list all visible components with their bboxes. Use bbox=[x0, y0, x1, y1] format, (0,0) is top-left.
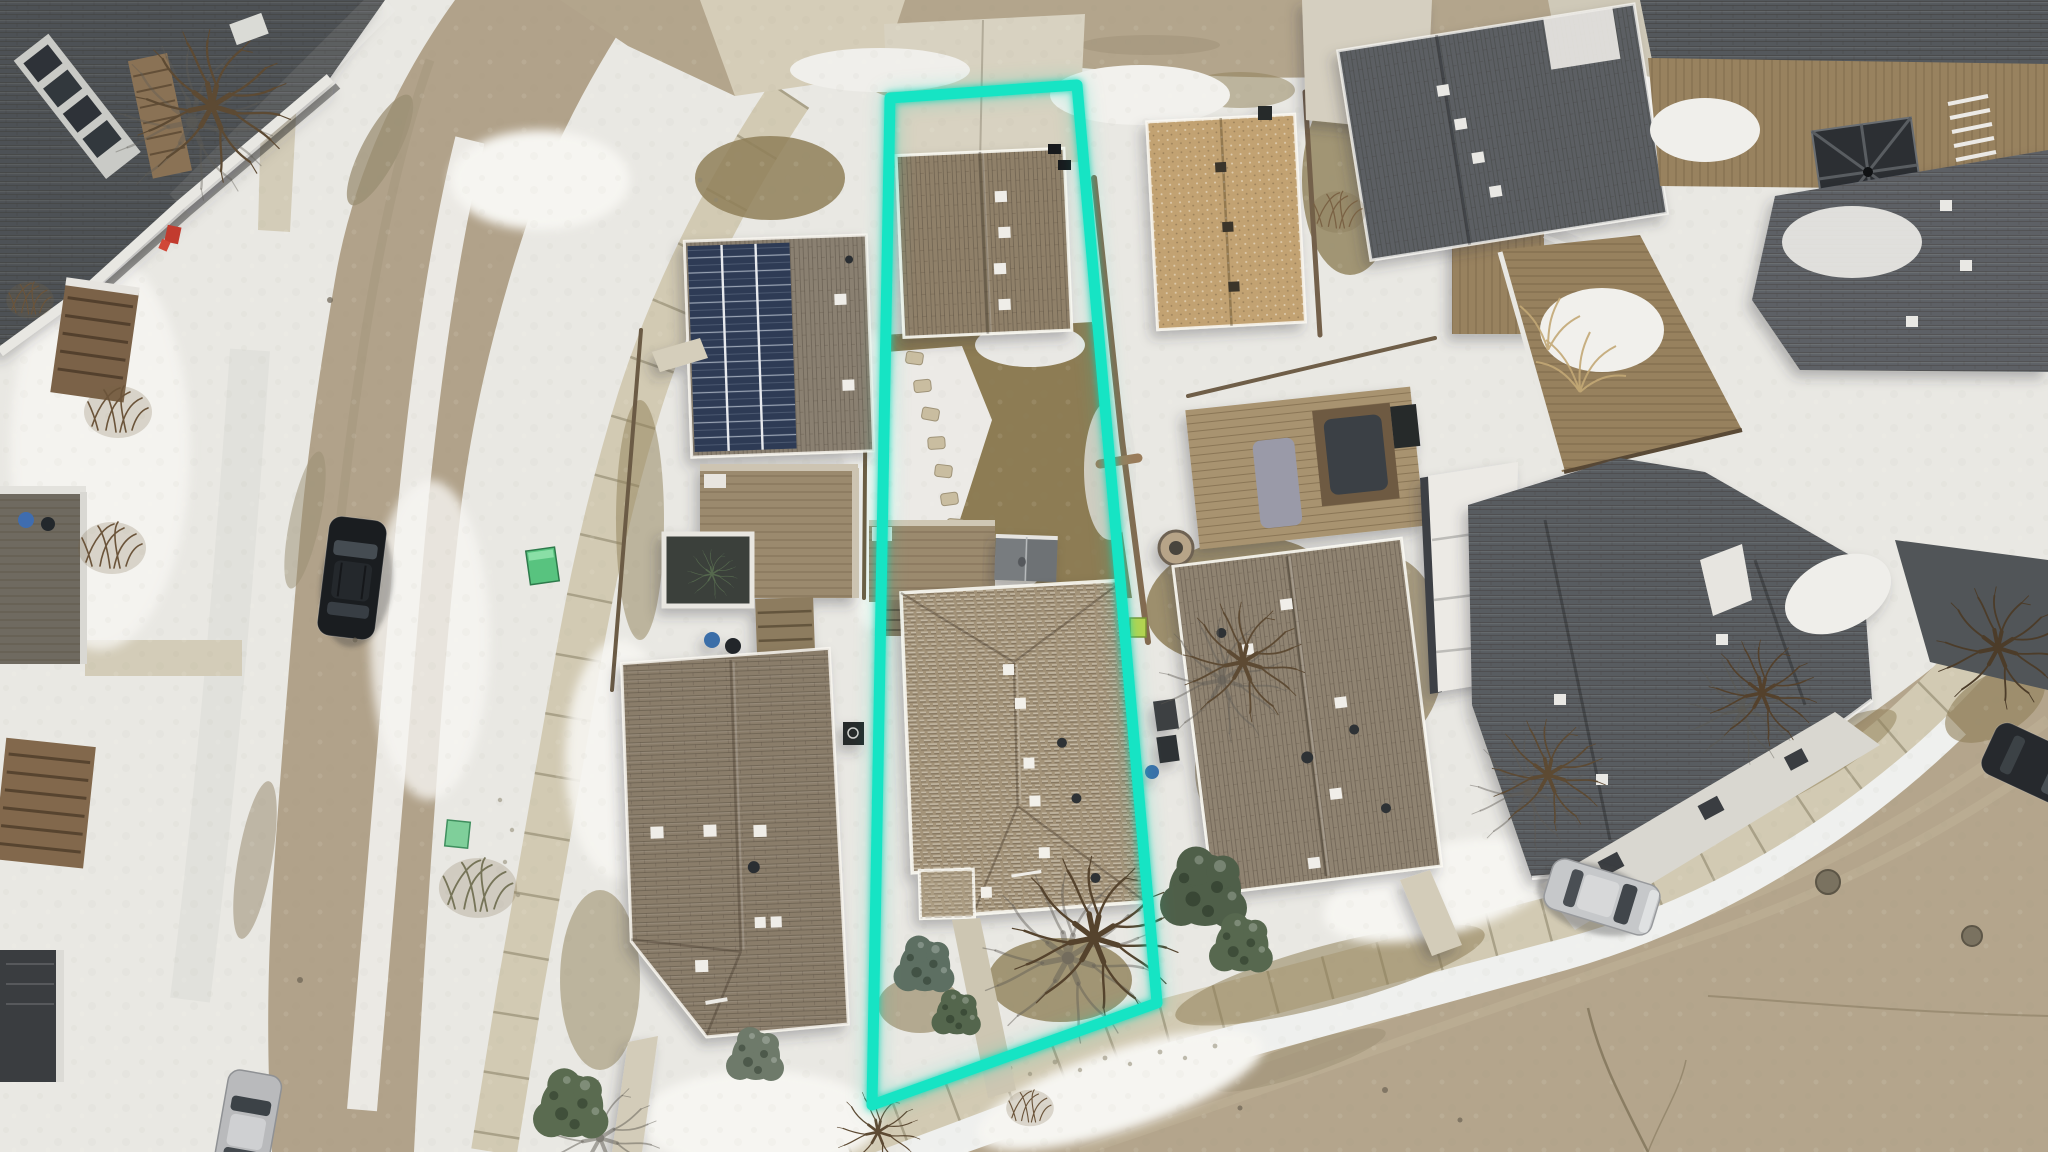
subject-garage bbox=[896, 148, 1072, 337]
window-well bbox=[664, 534, 752, 606]
deck-snow bbox=[1650, 98, 1760, 162]
manhole-cover bbox=[1816, 870, 1840, 894]
green-utility-box-lower bbox=[445, 820, 471, 848]
grill bbox=[1390, 404, 1420, 448]
balcony-5 bbox=[0, 950, 64, 1082]
manhole-cover bbox=[1962, 926, 1982, 946]
subject-house bbox=[901, 580, 1146, 919]
bare-shrub bbox=[84, 386, 152, 438]
roof-vent bbox=[834, 294, 846, 305]
deck-planter bbox=[704, 474, 726, 488]
bare-shrub bbox=[1006, 1090, 1054, 1126]
blue-bin bbox=[18, 512, 34, 528]
dark-bin bbox=[725, 638, 741, 654]
lime-utility-box bbox=[1130, 618, 1146, 637]
gray-shrub bbox=[439, 858, 517, 918]
aerial-photo-canvas bbox=[0, 0, 2048, 1152]
porch-deck-3 bbox=[0, 486, 87, 664]
bare-shrub bbox=[6, 282, 54, 318]
bare-shrub bbox=[78, 522, 146, 574]
roof-vent bbox=[842, 379, 854, 390]
bare-shrub bbox=[1311, 191, 1365, 233]
deck-steps bbox=[755, 597, 815, 655]
driveway-post bbox=[1048, 144, 1061, 154]
blue-bin bbox=[704, 632, 720, 648]
aerial-photo bbox=[0, 0, 2048, 1152]
dark-bin bbox=[41, 517, 55, 531]
green-utility-box-upper bbox=[526, 547, 559, 585]
subject-shed bbox=[994, 534, 1058, 582]
utility-box-dark bbox=[843, 722, 864, 745]
porch-stairs-4 bbox=[0, 738, 96, 869]
driveway-post bbox=[1058, 160, 1071, 170]
dark-roof-1 bbox=[1338, 4, 1667, 260]
